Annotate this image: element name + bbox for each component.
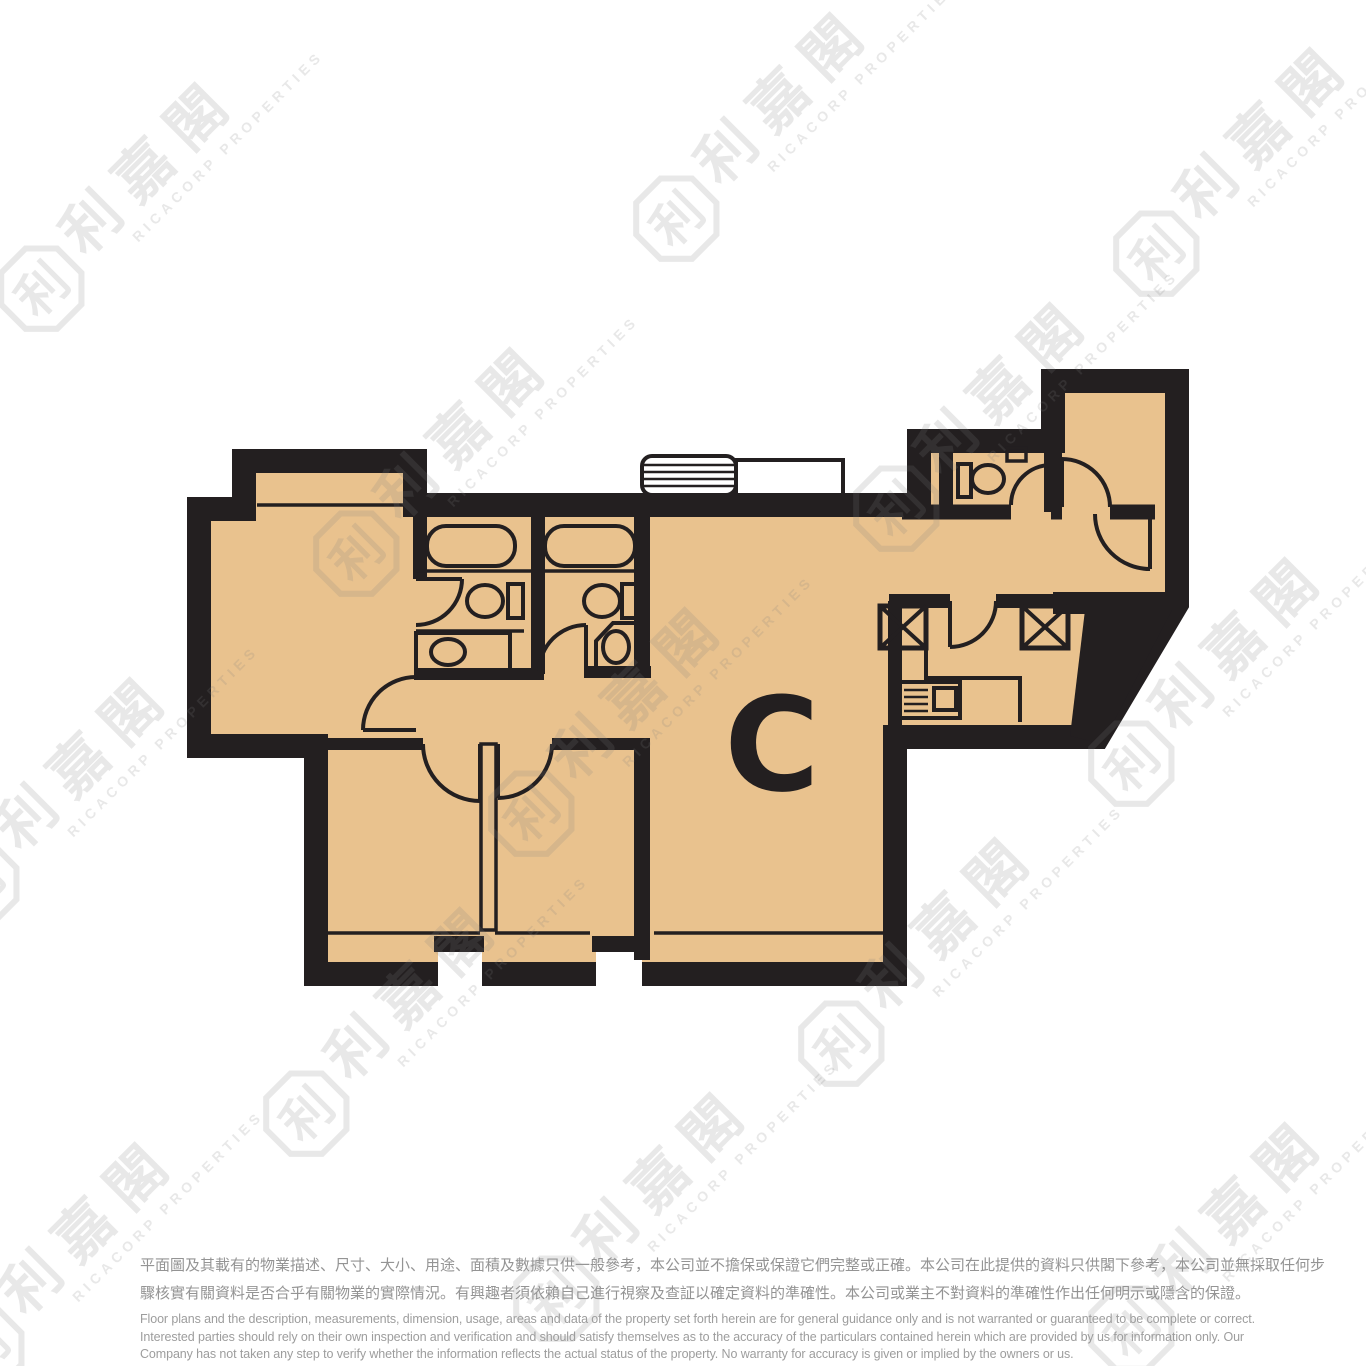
ac-ledge bbox=[736, 460, 843, 495]
floor-plan: C bbox=[0, 0, 1366, 1366]
disclaimer-en-line2: Interested parties should rely on their … bbox=[140, 1329, 1260, 1347]
disclaimer-zh-line2: 驟核實有關資料是否合乎有關物業的實際情況。有興趣者須依賴自己進行視察及查証以確定… bbox=[140, 1280, 1260, 1308]
bay-connector bbox=[434, 936, 484, 952]
unit-label: C bbox=[724, 669, 819, 821]
disclaimer-english: Floor plans and the description, measure… bbox=[140, 1311, 1260, 1364]
floorplan-page: C 利 利嘉閣 RICACORP PROPERTIES 利 利嘉閣RICACOR… bbox=[0, 0, 1366, 1366]
wall-kitchen-wedge bbox=[1070, 610, 1172, 744]
disclaimer-zh-line1: 平面圖及其載有的物業描述、尺寸、大小、用途、面積及數據只供一般參考，本公司並不擔… bbox=[140, 1252, 1260, 1280]
ac-unit-icon bbox=[642, 456, 736, 495]
disclaimer-en-line1: Floor plans and the description, measure… bbox=[140, 1311, 1260, 1329]
bay-notch bbox=[438, 952, 482, 994]
disclaimer-chinese: 平面圖及其載有的物業描述、尺寸、大小、用途、面積及數據只供一般參考，本公司並不擔… bbox=[140, 1252, 1260, 1308]
ac-platform bbox=[642, 456, 843, 495]
disclaimer-en-line3: Company has not taken any step to verify… bbox=[140, 1346, 1260, 1364]
